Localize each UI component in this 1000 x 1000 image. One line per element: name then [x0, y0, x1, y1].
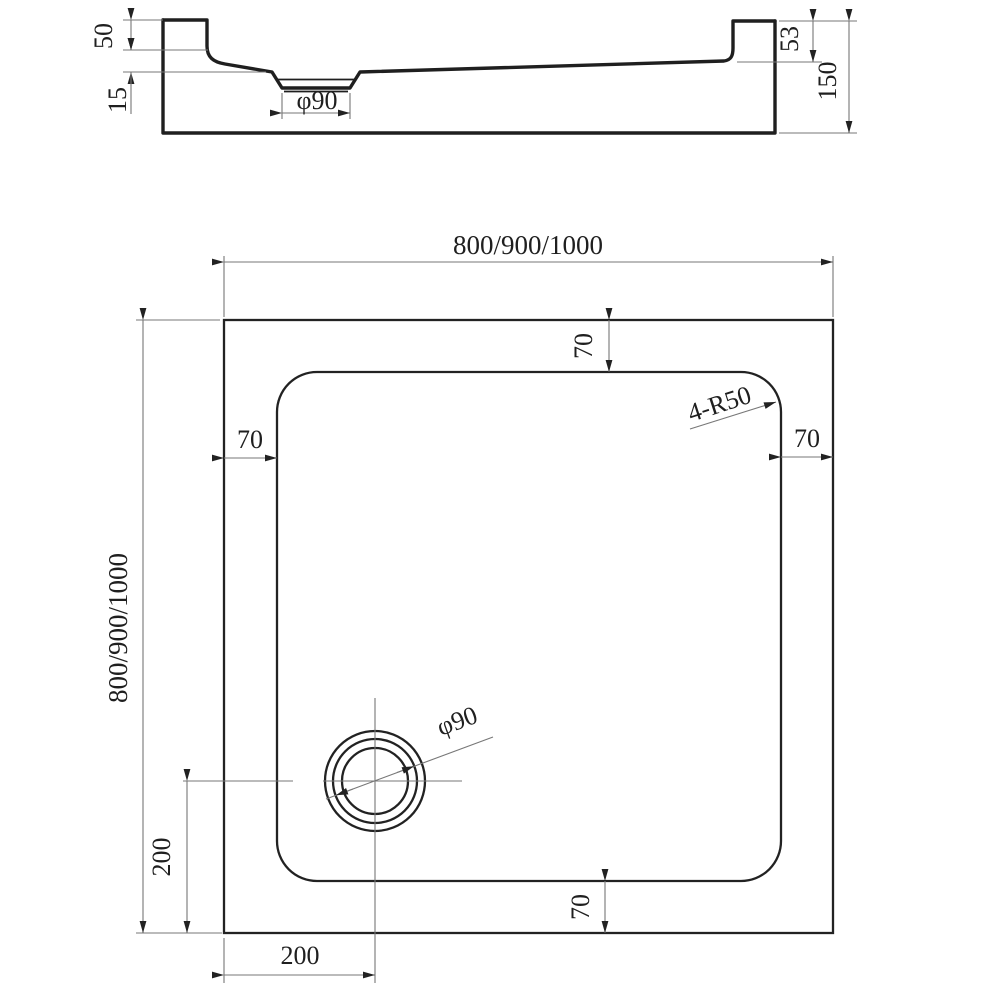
dim-label-drain-diameter: φ90	[296, 86, 337, 115]
section-top-profile	[163, 20, 775, 88]
dim-label-width: 800/900/1000	[453, 230, 603, 260]
section-view: 50 15 φ90 53 150	[89, 20, 857, 133]
dim-label-inner-rim-height: 53	[775, 26, 804, 52]
dim-label-drain-diameter-plan: φ90	[433, 700, 481, 741]
corner-radius-label: 4-R50	[684, 380, 755, 428]
dim-label-height: 800/900/1000	[103, 553, 133, 703]
dim-label-drain-offset-vertical: 200	[147, 838, 176, 877]
dim-label-edge-bottom: 70	[566, 894, 595, 920]
dim-label-drain-offset-horizontal: 200	[281, 941, 320, 970]
technical-drawing-page: 50 15 φ90 53 150 800/900/1000 800/900/10…	[0, 0, 1000, 1000]
dim-label-edge-left: 70	[237, 425, 263, 454]
plan-view: 800/900/1000 800/900/1000 70 70 70 70 4-…	[103, 230, 833, 983]
dim-label-edge-top: 70	[569, 333, 598, 359]
section-outer-outline	[163, 20, 775, 133]
tray-outer-edge	[224, 320, 833, 933]
dim-label-edge-right: 70	[794, 424, 820, 453]
dim-label-floor-depth: 15	[103, 87, 132, 113]
dim-label-rim-height: 50	[89, 23, 118, 49]
shower-tray-drawing: 50 15 φ90 53 150 800/900/1000 800/900/10…	[0, 0, 1000, 1000]
dim-label-total-height: 150	[813, 62, 842, 101]
